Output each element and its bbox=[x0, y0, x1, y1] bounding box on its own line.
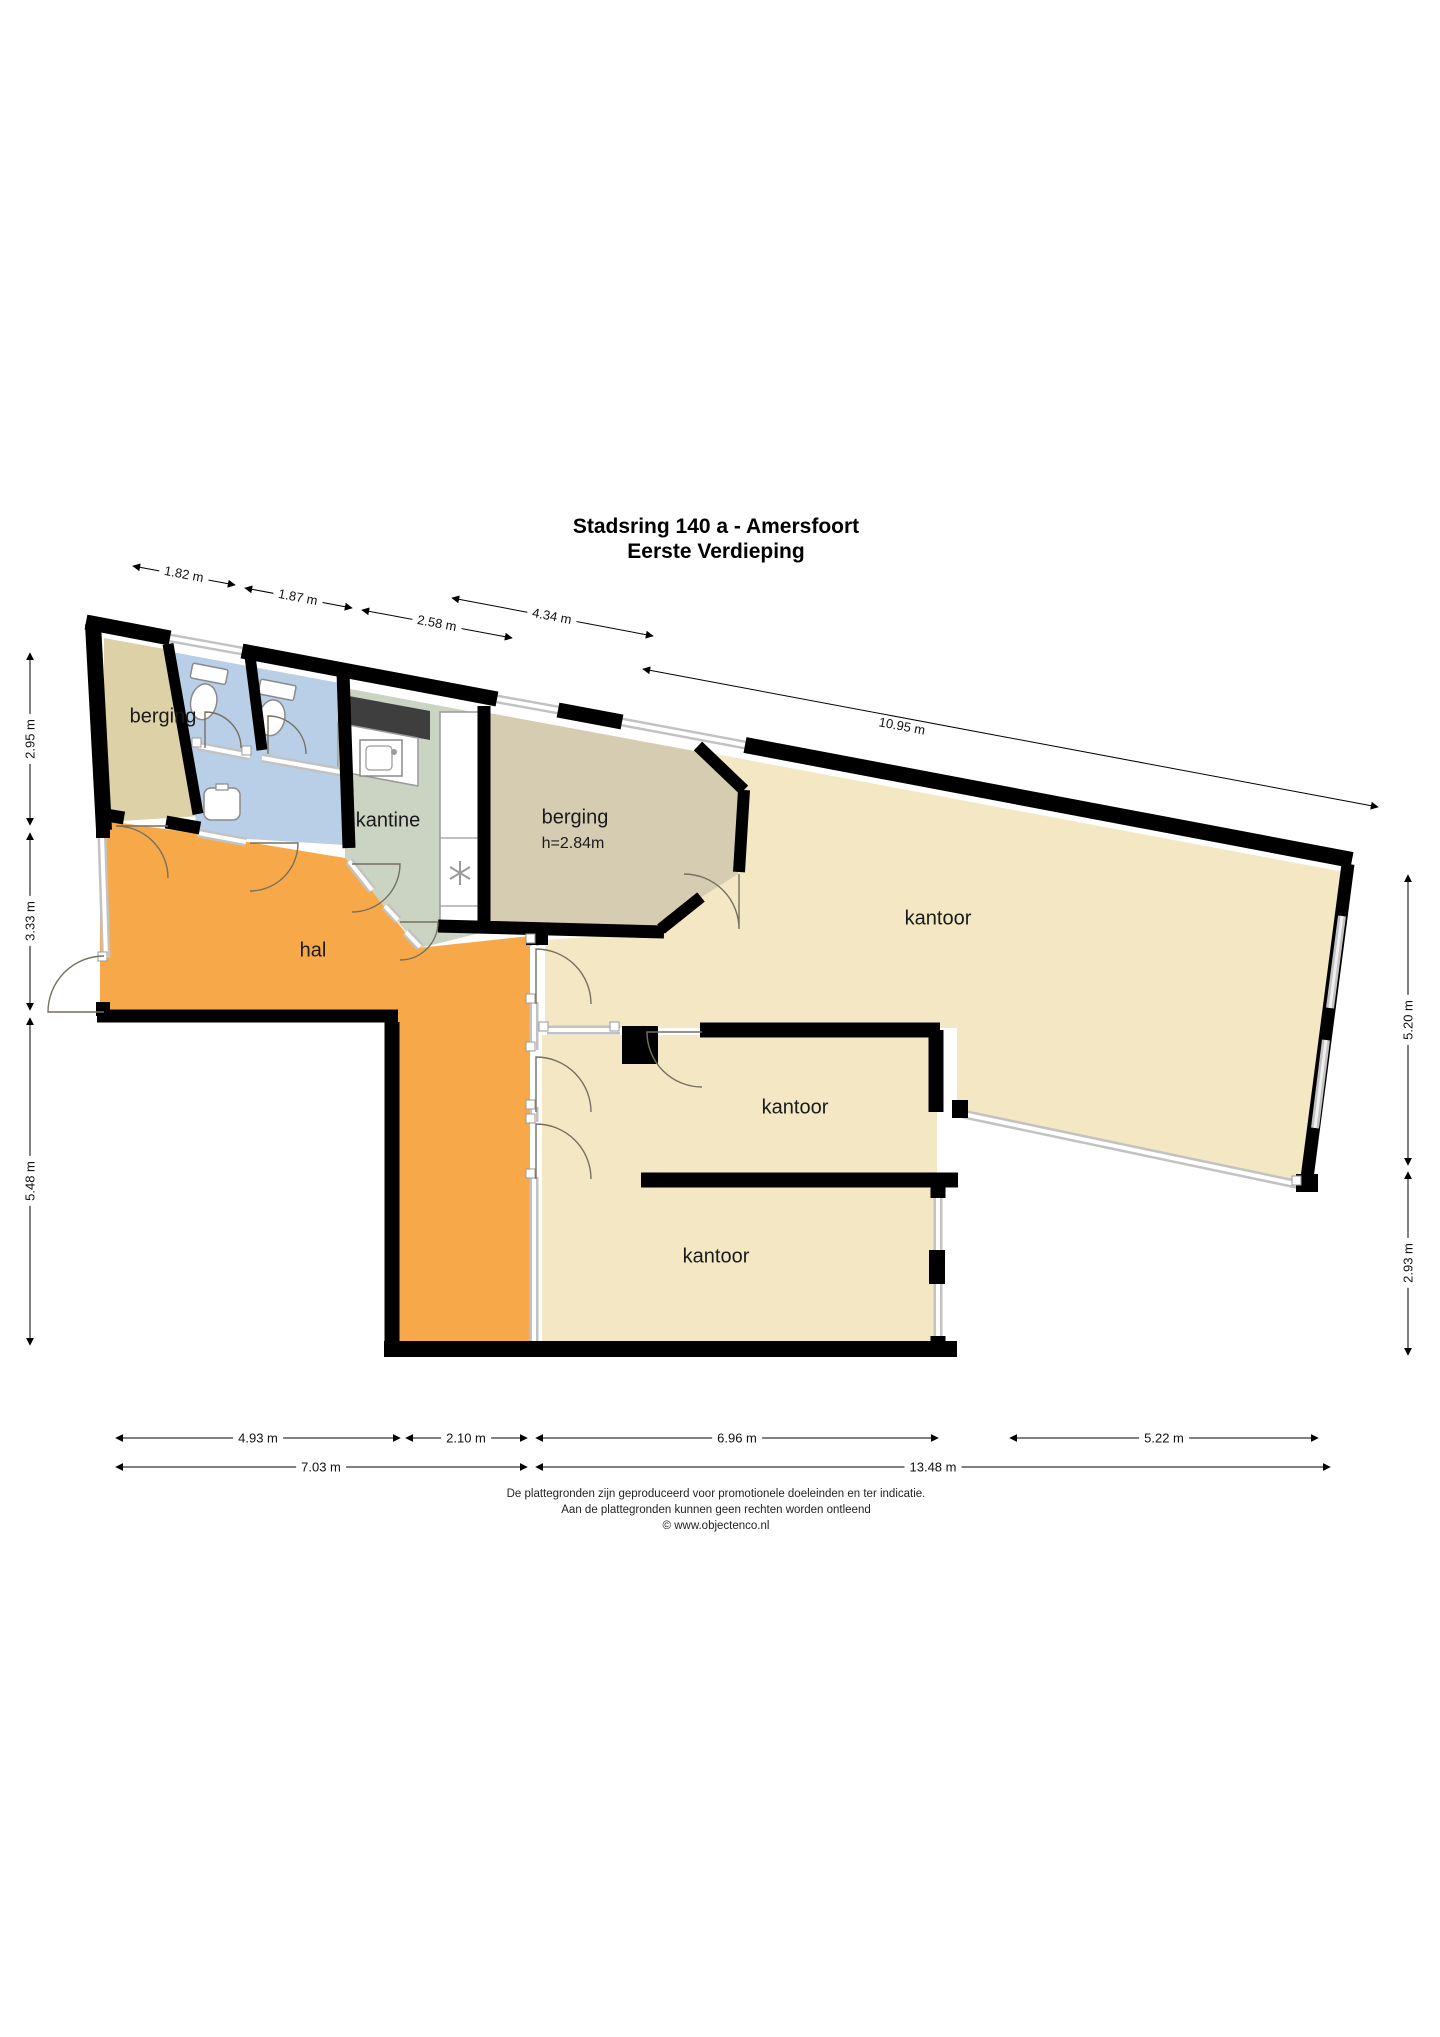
kitchen-sink-basin bbox=[366, 746, 392, 770]
dim-left-3: 5.48 m bbox=[23, 1156, 38, 1206]
floorplan-page: Stadsring 140 a - Amersfoort Eerste Verd… bbox=[0, 0, 1440, 2037]
room-label-kantine: kantine bbox=[356, 810, 421, 833]
dim-bottom-upper-4: 5.22 m bbox=[1139, 1431, 1189, 1446]
plan-title-line1: Stadsring 140 a - Amersfoort bbox=[573, 515, 859, 539]
footer-line3: © www.objectenco.nl bbox=[663, 1520, 770, 1532]
dim-bottom-lower-1: 7.03 m bbox=[296, 1460, 346, 1475]
washbasin-icon bbox=[204, 784, 240, 820]
dim-bottom-upper-1: 4.93 m bbox=[233, 1431, 283, 1446]
dim-left-2: 3.33 m bbox=[23, 896, 38, 946]
dim-left-1: 2.95 m bbox=[23, 714, 38, 764]
room-label-kantoor-bottom: kantoor bbox=[683, 1246, 750, 1269]
footer-line1: De plattegronden zijn geproduceerd voor … bbox=[507, 1488, 926, 1500]
room-label-kantoor-middle: kantoor bbox=[762, 1097, 829, 1120]
dim-bottom-upper-2: 2.10 m bbox=[441, 1431, 491, 1446]
room-label-berging-2: berging bbox=[542, 807, 609, 830]
dim-right-2: 2.93 m bbox=[1401, 1238, 1416, 1288]
plan-title-line2: Eerste Verdieping bbox=[627, 540, 804, 564]
room-label-berging-2-height: h=2.84m bbox=[542, 835, 605, 853]
room-label-kantoor-main: kantoor bbox=[905, 908, 972, 931]
room-label-hal: hal bbox=[300, 940, 327, 963]
floorplan-drawing bbox=[0, 0, 1440, 2037]
footer-line2: Aan de plattegronden kunnen geen rechten… bbox=[561, 1504, 870, 1516]
dim-bottom-lower-2: 13.48 m bbox=[905, 1460, 962, 1475]
dim-right-1: 5.20 m bbox=[1401, 995, 1416, 1045]
kitchen-faucet bbox=[391, 749, 397, 755]
room-label-berging-1: berging bbox=[130, 706, 197, 729]
appliance-column bbox=[440, 712, 480, 932]
dim-bottom-upper-3: 6.96 m bbox=[712, 1431, 762, 1446]
